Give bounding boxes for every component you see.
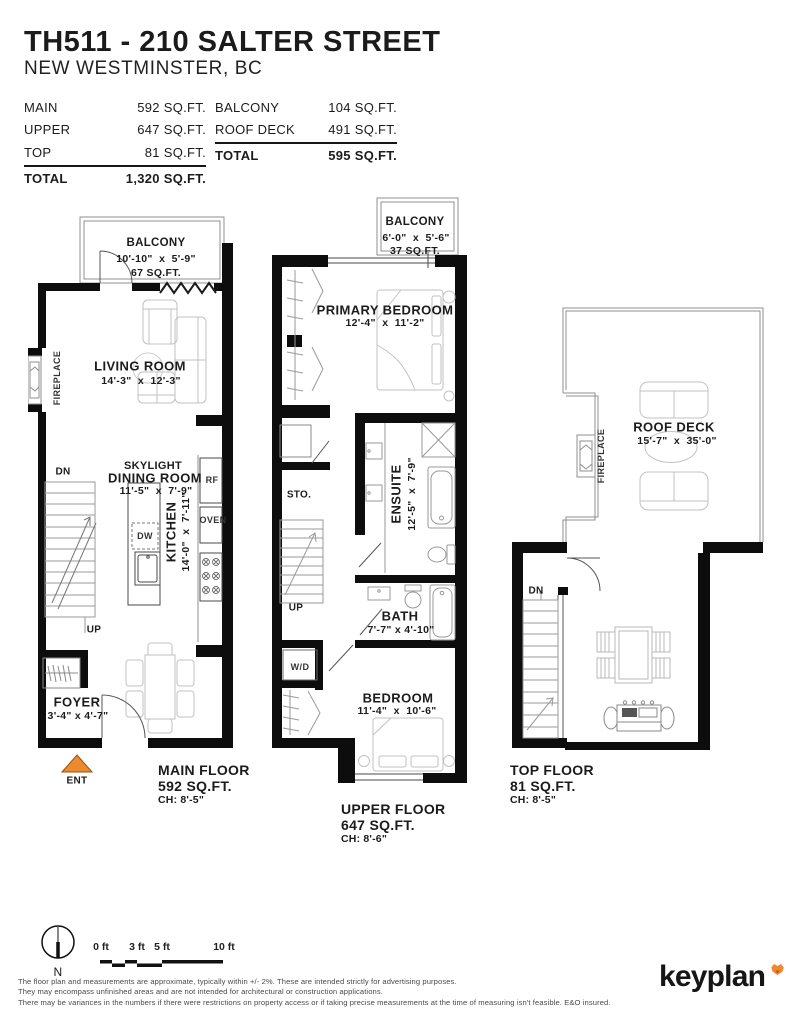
vanity-sink-icons	[366, 423, 385, 573]
storage-cabinet-icon	[280, 425, 311, 457]
area-label: BALCONY	[215, 100, 279, 115]
entry-arrow-icon	[62, 755, 92, 772]
total-label: TOTAL	[24, 171, 68, 186]
total-value: 595 SQ.FT.	[328, 148, 397, 163]
main-up-label: UP	[87, 625, 102, 636]
kitchen-label: KITCHEN	[164, 502, 179, 563]
storage-label: STO.	[287, 490, 311, 501]
bath-toilet-icon	[405, 585, 421, 608]
stair-room-wall	[558, 595, 563, 738]
oven-label: OVEN	[199, 515, 226, 525]
closet-icon	[283, 690, 320, 735]
shower-icon	[422, 423, 455, 457]
caption-line: 592 SQ.FT.	[158, 778, 250, 794]
ensuite-dims: 12'-5" x 7'-9"	[406, 457, 418, 530]
ensuite-door-icon	[359, 543, 381, 567]
fridge-label: RF	[206, 475, 219, 485]
scale-bar-icon	[95, 955, 235, 971]
dining-room-label: DINING ROOM	[108, 471, 202, 486]
primary-bedroom-label: PRIMARY BEDROOM	[317, 303, 454, 318]
primary-bedroom-dims: 12'-4" x 11'-2"	[345, 317, 424, 329]
roof-deck-dims: 15'-7" x 35'-0"	[637, 435, 717, 447]
upper-up-label: UP	[289, 603, 304, 614]
foyer-closet-icon	[43, 658, 80, 688]
fireplace-icon	[28, 356, 41, 404]
page-subtitle: NEW WESTMINSTER, BC	[24, 58, 262, 80]
main-fireplace-label: FIREPLACE	[52, 351, 62, 406]
living-room-label: LIVING ROOM	[94, 359, 186, 374]
scale-label-10: 10 ft	[213, 941, 235, 953]
total-label: TOTAL	[215, 148, 259, 163]
area-row: MAIN 592 SQ.FT.	[24, 96, 206, 119]
staircase-icon	[523, 591, 558, 738]
scale-label-0: 0 ft	[93, 941, 109, 953]
area-label: UPPER	[24, 122, 70, 137]
caption-line: 81 SQ.FT.	[510, 778, 594, 794]
bath-dims: 7'-7" x 4'-10"	[367, 624, 434, 636]
area-table-right: BALCONY 104 SQ.FT. ROOF DECK 491 SQ.FT. …	[215, 96, 397, 167]
storage-door-icon	[312, 441, 329, 463]
oven-icon	[200, 507, 222, 543]
disclaimer-line: The floor plan and measurements are appr…	[18, 977, 718, 987]
ensuite-toilet-icon	[428, 545, 455, 564]
living-room-dims: 14'-3" x 12'-3"	[101, 375, 181, 387]
caption-line: TOP FLOOR	[510, 762, 594, 778]
fox-logo-icon	[770, 963, 785, 976]
floor-plan-page: TH511 - 210 SALTER STREET NEW WESTMINSTE…	[0, 0, 800, 1036]
bedroom-door-icon	[329, 645, 353, 671]
caption-line: MAIN FLOOR	[158, 762, 250, 778]
foyer-label: FOYER	[54, 695, 101, 710]
foyer-dims: 3'-4" x 4'-7"	[48, 710, 109, 722]
upper-floor-caption: UPPER FLOOR 647 SQ.FT. CH: 8'-6"	[341, 801, 445, 845]
main-balcony-label: BALCONY	[127, 237, 186, 249]
caption-line: UPPER FLOOR	[341, 801, 445, 817]
disclaimer: The floor plan and measurements are appr…	[18, 977, 718, 1008]
dining-set-icon	[597, 627, 670, 683]
upper-balcony-label: BALCONY	[386, 216, 445, 228]
kitchen-island-icon	[128, 483, 160, 605]
caption-line: 647 SQ.FT.	[341, 817, 445, 833]
dining-room-dims: 11'-5" x 7'-9"	[120, 485, 193, 497]
caption-line: CH: 8'-6"	[341, 833, 445, 845]
caption-line: CH: 8'-5"	[158, 794, 250, 806]
caption-line: CH: 8'-5"	[510, 794, 594, 806]
area-label: TOP	[24, 145, 51, 160]
main-balcony-dims: 10'-10" x 5'-9"	[116, 253, 196, 265]
upper-floor-plan	[265, 195, 480, 850]
accordion-window-icon	[160, 283, 216, 293]
top-floor-plan	[505, 300, 785, 810]
scale-label-5: 5 ft	[154, 941, 170, 953]
area-total-row: TOTAL 1,320 SQ.FT.	[24, 167, 206, 190]
washer-dryer-label: W/D	[291, 662, 310, 672]
top-floor-caption: TOP FLOOR 81 SQ.FT. CH: 8'-5"	[510, 762, 594, 806]
area-value: 647 SQ.FT.	[137, 122, 206, 137]
scale-label-3: 3 ft	[129, 941, 145, 953]
area-value: 104 SQ.FT.	[328, 100, 397, 115]
page-title: TH511 - 210 SALTER STREET	[24, 26, 440, 59]
area-value: 81 SQ.FT.	[145, 145, 206, 160]
top-fireplace-label: FIREPLACE	[596, 429, 606, 484]
area-label: MAIN	[24, 100, 58, 115]
area-row: BALCONY 104 SQ.FT.	[215, 96, 397, 119]
upper-balcony-area: 37 SQ.FT.	[390, 245, 440, 257]
bath-sink-icon	[368, 587, 390, 600]
bedroom-window-icon	[355, 774, 423, 780]
main-balcony-area: 67 SQ.FT.	[131, 267, 181, 279]
area-total-row: TOTAL 595 SQ.FT.	[215, 144, 397, 167]
kitchen-dims: 14'-0" x 7'-11"	[180, 492, 192, 571]
primary-closet-icon	[287, 269, 323, 400]
area-label: ROOF DECK	[215, 122, 295, 137]
bath-label: BATH	[382, 609, 419, 624]
dishwasher-label: DW	[137, 531, 153, 541]
upper-balcony-dims: 6'-0" x 5'-6"	[382, 232, 449, 244]
armchair-icon	[143, 300, 177, 344]
area-table-left: MAIN 592 SQ.FT. UPPER 647 SQ.FT. TOP 81 …	[24, 96, 206, 190]
top-dn-label: DN	[528, 586, 543, 597]
bed-icon	[373, 718, 443, 771]
area-row: TOP 81 SQ.FT.	[24, 141, 206, 164]
ensuite-label: ENSUITE	[389, 464, 404, 523]
roof-deck-label: ROOF DECK	[633, 420, 715, 435]
stove-icon	[200, 553, 222, 601]
staircase-icon	[45, 482, 95, 633]
bathtub-icon	[428, 467, 455, 528]
kitchen-sink-icon	[135, 552, 160, 585]
brand-logo: keyplan	[659, 960, 765, 994]
total-value: 1,320 SQ.FT.	[126, 171, 206, 186]
bedroom-dims: 11'-4" x 10'-6"	[357, 705, 436, 717]
disclaimer-line: There may be variances in the numbers if…	[18, 998, 718, 1008]
dining-set-icon	[126, 643, 194, 733]
bbq-icon	[604, 701, 674, 731]
entry-label: ENT	[67, 776, 88, 787]
main-dn-label: DN	[55, 467, 70, 478]
door-icon	[567, 558, 600, 591]
north-compass-icon	[40, 924, 80, 964]
area-value: 491 SQ.FT.	[328, 122, 397, 137]
area-row: UPPER 647 SQ.FT.	[24, 119, 206, 142]
disclaimer-line: They may encompass unfinished areas and …	[18, 987, 718, 997]
fireplace-icon	[577, 435, 595, 477]
area-row: ROOF DECK 491 SQ.FT.	[215, 119, 397, 142]
main-floor-caption: MAIN FLOOR 592 SQ.FT. CH: 8'-5"	[158, 762, 250, 806]
staircase-icon	[280, 520, 323, 603]
bedroom-label: BEDROOM	[363, 691, 434, 706]
area-value: 592 SQ.FT.	[137, 100, 206, 115]
